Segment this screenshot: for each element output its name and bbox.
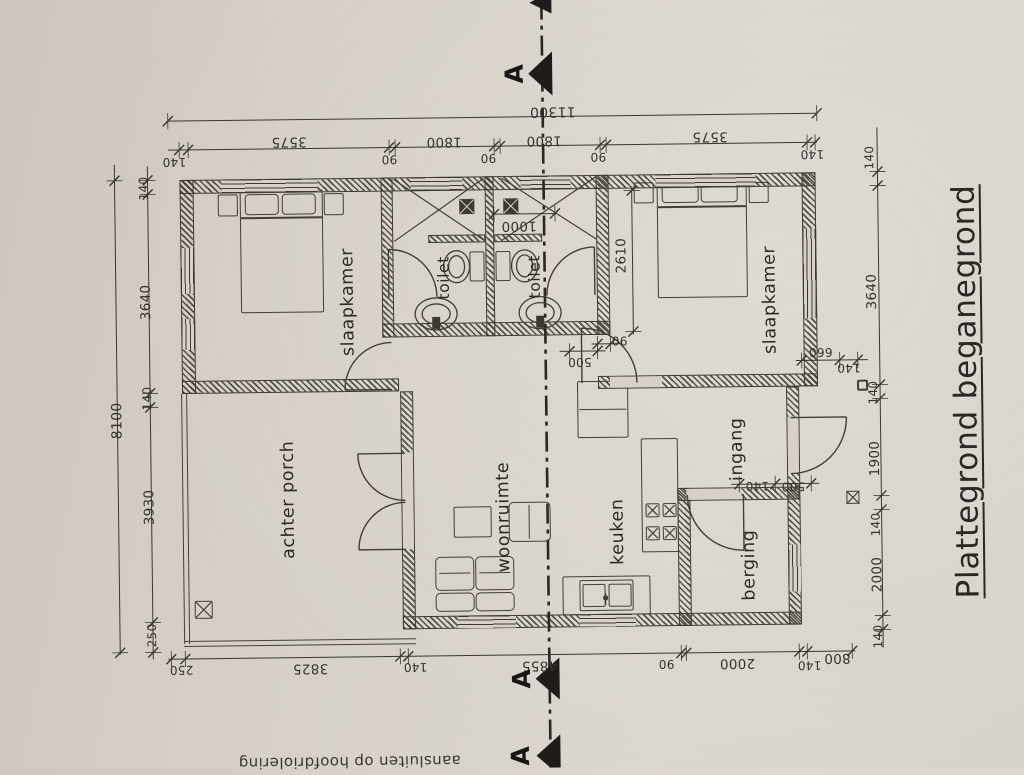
dim-left: 140 xyxy=(140,386,154,410)
dim-right: 140 xyxy=(871,625,885,649)
dim-shower-width: 1000 xyxy=(501,218,537,234)
dim-top: 140 xyxy=(162,155,186,169)
dim-bottom: 2000 xyxy=(720,655,756,671)
section-letter-bottom: A xyxy=(507,669,536,689)
photo-of-floorplan: { "title": "Plattegrond beganegrond", "s… xyxy=(0,0,1024,768)
dim-wall-90: 90 xyxy=(611,334,627,348)
shower-symbols xyxy=(393,177,596,241)
dim-door-offset: 500 xyxy=(568,355,592,369)
dim-nook-140: 140 xyxy=(837,361,861,375)
room-label-toilet-right: toilet xyxy=(525,255,544,299)
floorplan-drawing: 11300 140 3575 90 1800 90 1800 90 3575 1… xyxy=(0,0,1024,774)
dim-bottom: 3825 xyxy=(293,660,329,676)
dim-bottom: 800 xyxy=(824,650,851,666)
dim-right: 140 xyxy=(866,381,880,405)
section-arrow-top xyxy=(528,51,553,95)
toilet-symbols xyxy=(443,250,537,283)
room-label-toilet-left: toilet xyxy=(434,256,453,300)
dim-left: 250 xyxy=(145,623,159,647)
dim-top: 90 xyxy=(590,150,606,164)
dim-right: 140 xyxy=(869,513,883,537)
dim-nook-660: 660 xyxy=(809,345,833,359)
room-label-living: woonruimte xyxy=(493,462,514,573)
basin-symbols xyxy=(415,296,561,330)
dim-right: 2000 xyxy=(869,557,885,593)
dim-bottom: 90 xyxy=(658,657,674,671)
dim-top: 90 xyxy=(480,151,496,165)
dim-bottom: 140 xyxy=(403,660,427,674)
drawing-title: Plattegrond beganegrond xyxy=(946,184,987,599)
dim-top: 140 xyxy=(800,147,824,161)
dim-right: 1900 xyxy=(867,441,883,477)
dim-top: 3575 xyxy=(271,133,307,149)
dim-entry-140: 140 xyxy=(745,479,769,493)
dim-left: 140 xyxy=(136,176,150,200)
dim-bottom: 140 xyxy=(797,658,821,672)
dim-entry-500: 500 xyxy=(781,479,805,493)
section-letter-top: A xyxy=(500,64,529,84)
dim-total-width: 11300 xyxy=(530,103,576,120)
dim-top: 1800 xyxy=(526,132,562,148)
section-letter-bottom-edge: A xyxy=(506,746,535,766)
room-label-bedroom-right: slaapkamer xyxy=(759,246,780,354)
dim-left: 3930 xyxy=(141,490,157,526)
room-label-storage: berging xyxy=(739,529,760,600)
room-label-porch: achter porch xyxy=(278,440,299,559)
sewer-note: aansluiten op hoofdriolering xyxy=(238,752,461,773)
dim-top: 90 xyxy=(381,152,397,166)
room-label-bedroom-left: slaapkamer xyxy=(337,248,358,356)
room-label-entrance: ingang xyxy=(726,417,747,481)
dim-bottom: 250 xyxy=(169,663,193,677)
section-arrow-bottom-edge xyxy=(536,734,561,774)
room-label-kitchen: keuken xyxy=(607,498,628,565)
dim-bedroom2-depth: 2610 xyxy=(613,238,629,274)
dim-top: 1800 xyxy=(426,134,462,150)
dim-right: 140 xyxy=(862,146,876,170)
dim-total-depth: 8100 xyxy=(109,402,125,439)
dim-right: 3640 xyxy=(864,274,880,310)
dim-top: 3575 xyxy=(692,128,728,144)
dimension-lines xyxy=(106,104,892,667)
dim-left: 3640 xyxy=(138,285,154,321)
